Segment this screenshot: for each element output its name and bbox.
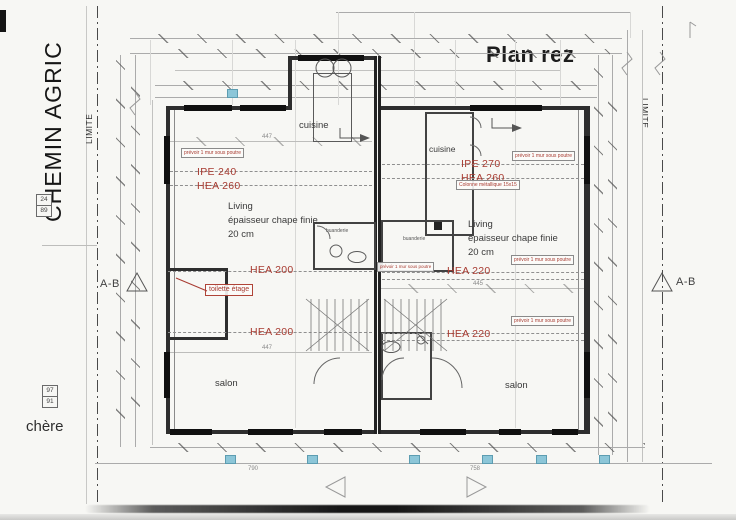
dim-ticks xyxy=(131,75,140,435)
note-wall-under-beam: prévoir 1 mur sous poutre xyxy=(377,262,434,272)
note-wall-under-beam: prévoir 1 mur sous poutre xyxy=(181,148,244,158)
highlight-dim-mark xyxy=(536,455,547,464)
ref-box-91: 91 xyxy=(42,396,58,408)
grid-line xyxy=(560,40,561,105)
grid-line xyxy=(414,40,415,105)
grid-line xyxy=(338,12,339,38)
street-name-fragment: chère xyxy=(26,418,64,435)
dim-value: 447 xyxy=(262,134,272,140)
beam-label-ipe270: IPE 270 xyxy=(461,158,500,170)
highlight-dim-mark xyxy=(307,455,318,464)
datum-triangle-right xyxy=(467,477,486,497)
dim-ticks xyxy=(116,55,125,447)
room-label-laundry-left: buanderie xyxy=(326,228,348,234)
living-line1: Living xyxy=(468,219,493,230)
scan-bottom-shadow xyxy=(85,505,650,513)
room-label-kitchen-left: cuisine xyxy=(299,120,329,131)
beam-label-hea220-mid: HEA 220 xyxy=(447,265,491,277)
page-edge-line-left xyxy=(86,6,87,504)
note-wall-under-beam: prévoir 1 mur sous poutre xyxy=(511,255,574,265)
datum-triangle-left xyxy=(326,477,345,497)
room-label-laundry-right: buanderie xyxy=(403,236,425,242)
section-marker-right: A-B xyxy=(676,276,696,288)
floorplan-sheet: CHEMIN AGRIC LIMITE LIMITE 24 89 97 91 A… xyxy=(0,0,736,520)
dim-ticks xyxy=(150,443,645,452)
dim-value: 758 xyxy=(470,466,480,472)
living-line1: Living xyxy=(228,201,253,212)
highlight-dim-mark xyxy=(482,455,493,464)
note-wall-under-beam: prévoir 1 mur sous poutre xyxy=(512,151,575,161)
scan-corner-mark xyxy=(0,10,6,32)
dim-line xyxy=(627,30,628,462)
window xyxy=(240,105,286,111)
dim-ticks xyxy=(130,34,622,43)
dim-value: 445 xyxy=(473,281,483,287)
room-label-salon-right: salon xyxy=(505,380,528,391)
grid-line xyxy=(414,12,415,38)
window xyxy=(184,105,232,111)
road-label: CHEMIN AGRIC xyxy=(40,0,80,222)
beam-label-hea200-low: HEA 200 xyxy=(250,326,294,338)
staircase-left xyxy=(306,299,369,351)
grid-line xyxy=(630,12,631,38)
scan-bottom-edge xyxy=(0,514,736,520)
corner-mark xyxy=(690,22,696,38)
highlight-dim-mark xyxy=(227,89,238,98)
grid-line xyxy=(150,40,151,105)
window xyxy=(470,105,542,111)
highlight-dim-mark xyxy=(225,455,236,464)
dim-line xyxy=(168,352,372,353)
room-label-living-left: Living épaisseur chape finie 20 cm xyxy=(228,200,318,242)
living-line2: épaisseur chape finie xyxy=(228,215,318,226)
window xyxy=(552,429,578,435)
beam-axis xyxy=(382,279,584,280)
limit-label-left: LIMITE xyxy=(84,96,96,144)
ref-box-89: 89 xyxy=(36,205,52,217)
beam-label-hea220-low: HEA 220 xyxy=(447,328,491,340)
wall-right-inner-line xyxy=(578,110,579,430)
kitchen-island-left xyxy=(313,73,352,142)
break-symbol xyxy=(655,52,665,75)
window xyxy=(324,429,362,435)
beam-label-ipe240: IPE 240 xyxy=(197,166,236,178)
window xyxy=(164,352,170,398)
window xyxy=(420,429,466,435)
window xyxy=(164,136,170,184)
dim-line xyxy=(95,463,712,464)
steel-column-base xyxy=(434,222,442,230)
dim-line xyxy=(642,30,643,462)
highlight-dim-mark xyxy=(599,455,610,464)
window xyxy=(170,429,212,435)
leader-line xyxy=(42,245,97,246)
window xyxy=(499,429,521,435)
limit-line-right xyxy=(662,6,663,504)
door-arc xyxy=(314,358,340,384)
note-steel-column: Colonne métallique 15x15 xyxy=(456,180,520,190)
window xyxy=(298,55,364,61)
dim-line xyxy=(152,100,153,445)
limit-label-right: LIMITE xyxy=(638,98,650,148)
room-label-kitchen-right: cuisine xyxy=(429,144,455,154)
room-label-salon-left: salon xyxy=(215,378,238,389)
room-label-living-right: Living épaisseur chape finie 20 cm xyxy=(468,218,558,260)
note-toilet-upstairs: toilette étage xyxy=(205,284,253,296)
living-line3: 20 cm xyxy=(228,229,254,240)
dim-value: 447 xyxy=(262,345,272,351)
beam-axis xyxy=(382,340,584,341)
bay-wall-bottom xyxy=(166,337,228,340)
dim-ticks xyxy=(594,55,603,455)
red-leader-line xyxy=(176,278,207,291)
dim-ticks xyxy=(608,80,617,450)
dim-value: 790 xyxy=(248,466,258,472)
entry-arrow-right xyxy=(492,118,522,132)
wall-kitchen-bump-left xyxy=(288,58,292,110)
door-arc xyxy=(432,358,462,388)
dim-line xyxy=(336,12,630,13)
bay-wall-right xyxy=(225,268,228,340)
beam-label-hea260-left: HEA 260 xyxy=(197,180,241,192)
limit-line-left xyxy=(97,6,98,504)
living-line3: 20 cm xyxy=(468,247,494,258)
window xyxy=(584,352,590,398)
wc-right-partition xyxy=(381,332,432,400)
window xyxy=(248,429,293,435)
living-line2: épaisseur chape finie xyxy=(468,233,558,244)
note-wall-under-beam: prévoir 1 mur sous poutre xyxy=(511,316,574,326)
highlight-dim-mark xyxy=(409,455,420,464)
grid-line xyxy=(455,40,456,105)
window xyxy=(584,136,590,184)
beam-label-hea200-mid: HEA 200 xyxy=(250,264,294,276)
